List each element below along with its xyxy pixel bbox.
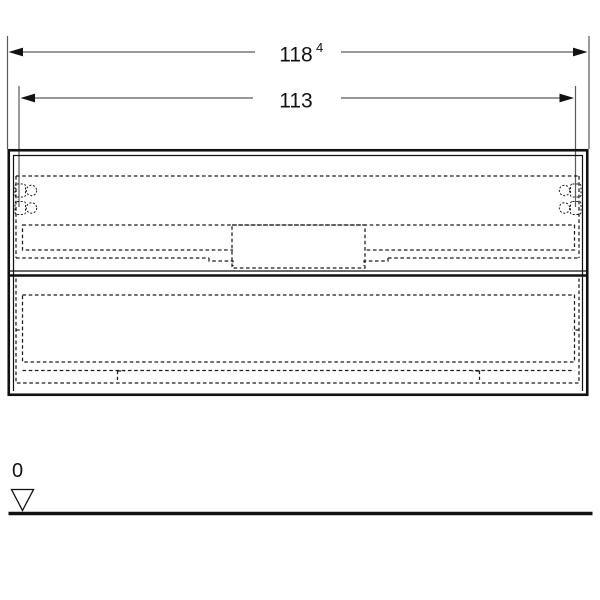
drawer-hardware-right [559,184,581,215]
lower-drawer-hidden-outline [16,279,579,384]
dimension-body-width: 113 [19,86,576,207]
floor-level-label: 0 [12,460,23,482]
siphon-cutout-hook-left [209,258,233,266]
hardware-cam [559,185,569,195]
arrow-left-icon [9,48,24,57]
siphon-cutout-mask [233,226,364,267]
arrow-left-icon [21,94,36,103]
arrow-right-icon [573,48,588,57]
dimension-drawing-canvas: 118 4 113 [0,0,600,600]
level-datum-icon [12,490,34,511]
arrow-right-icon [560,94,575,103]
drawer-stop-right [473,371,480,381]
hardware-cam [26,185,36,195]
body-width-label: 113 [279,90,312,113]
drawer-stop-left [118,371,125,381]
hardware-cam [26,203,36,213]
upper-drawer-hidden-outline [16,176,579,268]
drawer-hardware-left [15,184,37,215]
lower-drawer-outer-dashed [16,279,579,384]
drawing-page: 118 4 113 [0,0,600,600]
cabinet-front-view [9,150,588,395]
cabinet-outer-outline [9,150,588,395]
floor-datum: 0 [9,460,593,514]
siphon-cutout-hook-right [364,258,388,266]
overall-width-label: 118 [279,44,312,67]
overall-width-superscript: 4 [316,40,323,55]
hardware-cam [559,203,569,213]
lower-drawer-inner-box [23,295,575,362]
